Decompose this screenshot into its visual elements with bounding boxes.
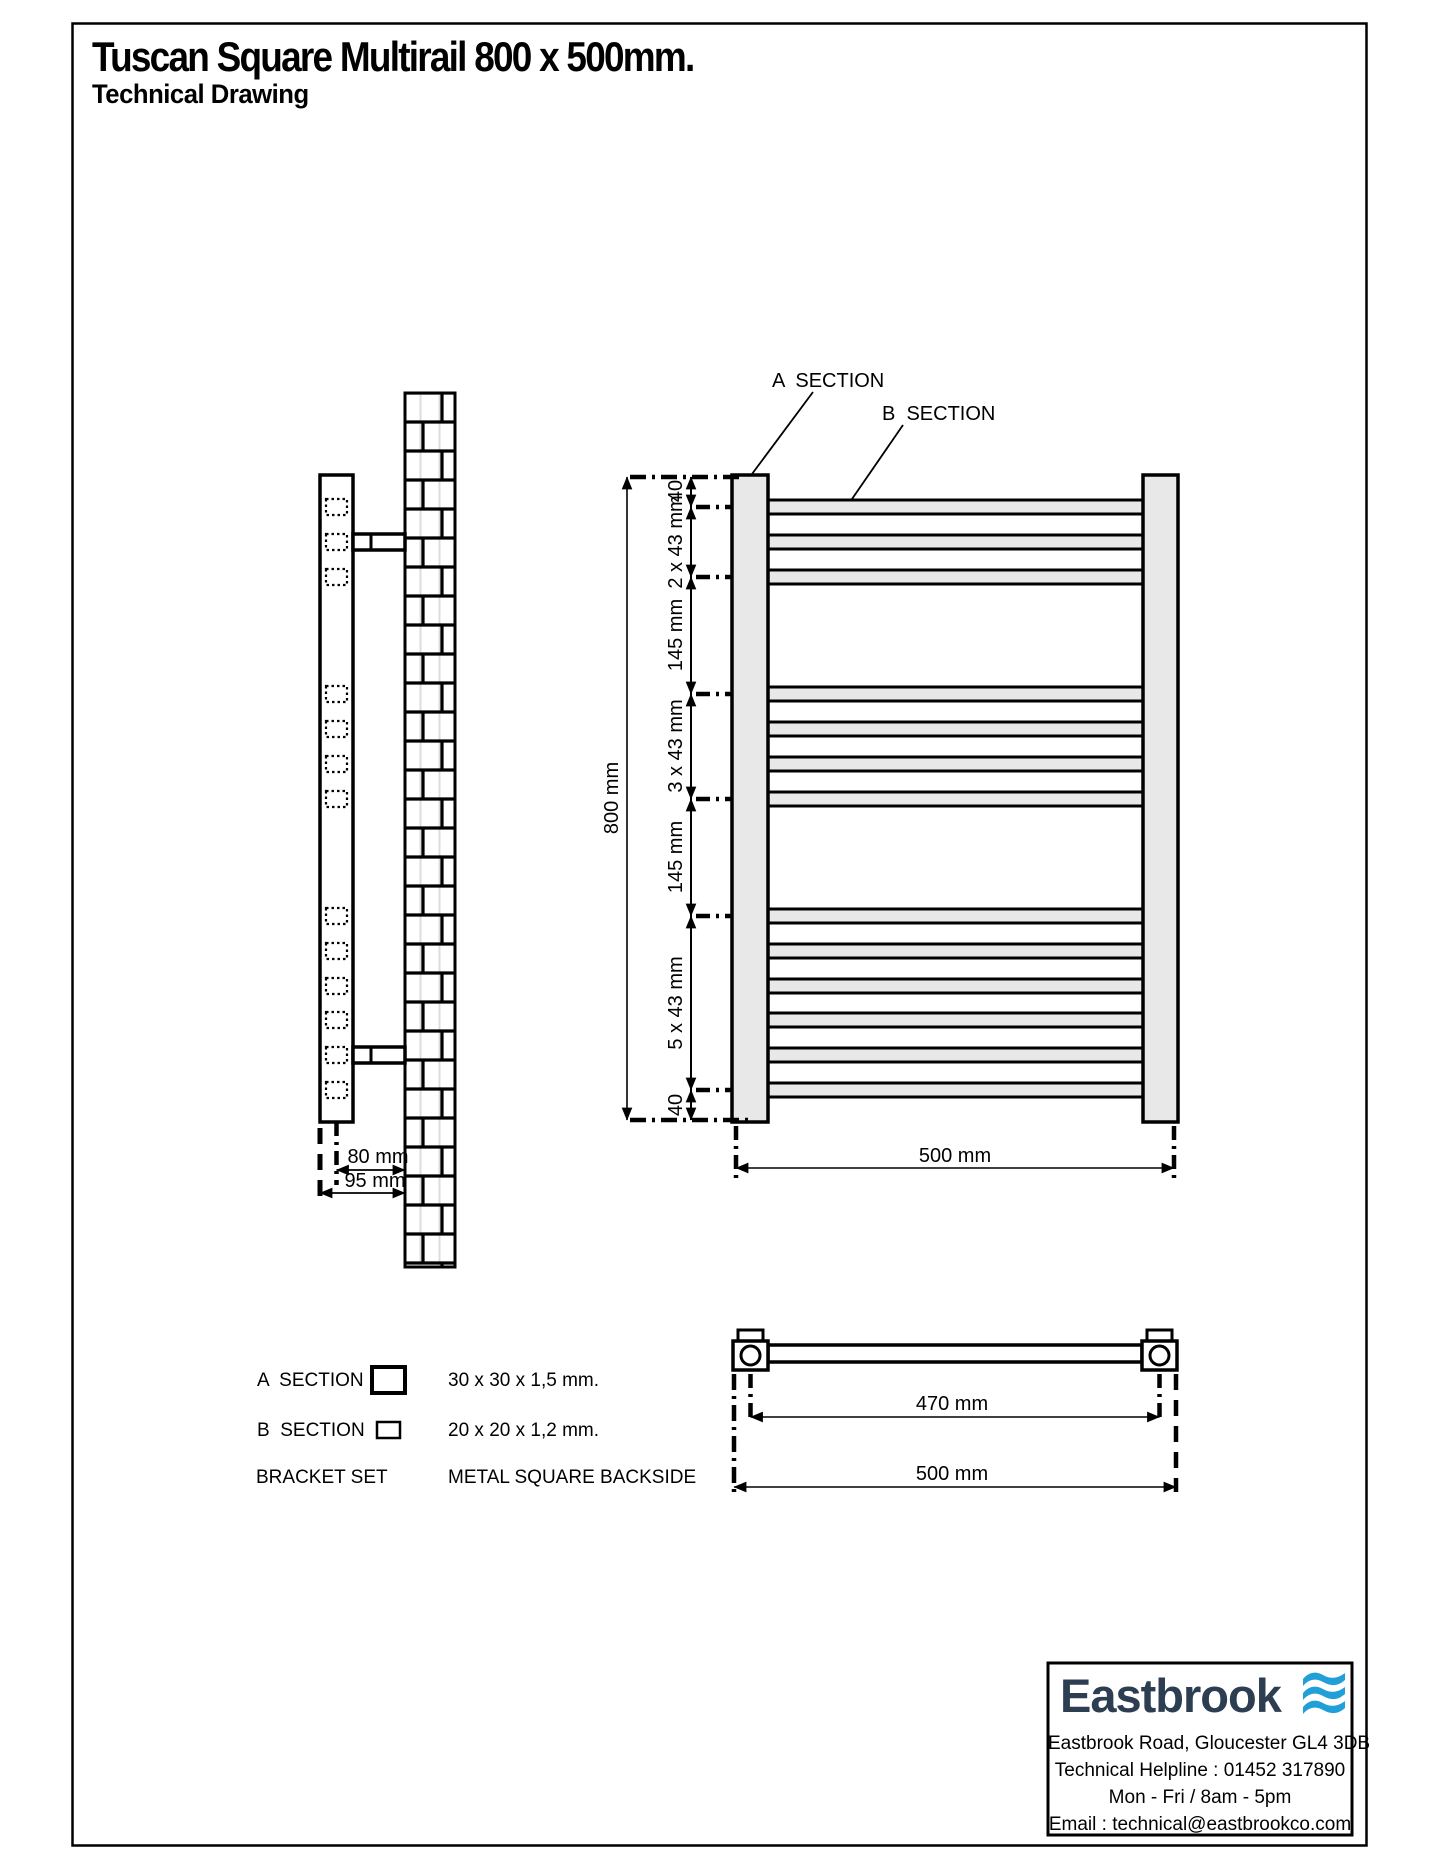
legend-section-b-swatch: [377, 1422, 400, 1438]
horizontal-bar: [766, 570, 1145, 584]
dim-label-500mm-front: 500 mm: [919, 1146, 991, 1166]
dim-label-145-lower: 145 mm: [666, 821, 686, 893]
horizontal-bar: [766, 757, 1145, 771]
horizontal-bar: [766, 979, 1145, 993]
legend-section-b-label: B SECTION: [257, 1421, 365, 1440]
dim-label-bottom-40: 40: [666, 1094, 686, 1116]
bracket-bottom: [353, 1047, 405, 1063]
legend-bracket-label: BRACKET SET: [256, 1468, 388, 1487]
section-a-leader-line: [752, 392, 813, 474]
left-rail: [732, 475, 768, 1122]
section-b-label: B SECTION: [882, 404, 995, 424]
horizontal-bar: [766, 909, 1145, 923]
horizontal-bar: [766, 1048, 1145, 1062]
technical-drawing-page: Tuscan Square Multirail 800 x 500mm. Tec…: [0, 0, 1445, 1870]
bracket-top: [353, 534, 405, 550]
horizontal-bar: [766, 535, 1145, 549]
page-title: Tuscan Square Multirail 800 x 500mm.: [92, 36, 694, 78]
side-view: [320, 393, 455, 1267]
left-fixing-hole: [741, 1346, 760, 1365]
horizontal-bar: [766, 687, 1145, 701]
footer-address: Eastbrook Road, Gloucester GL4 3DB: [1048, 1734, 1352, 1753]
legend-section-a-swatch: [372, 1367, 405, 1393]
dim-label-3x43: 3 x 43 mm: [666, 699, 686, 792]
brick-wall: [405, 393, 455, 1267]
wall-section: [405, 393, 455, 1267]
dim-label-470mm: 470 mm: [916, 1394, 988, 1414]
dim-label-95mm: 95 mm: [344, 1171, 405, 1191]
dim-label-500mm-top: 500 mm: [916, 1464, 988, 1484]
horizontal-bars: [766, 500, 1145, 1097]
horizontal-bar: [766, 1013, 1145, 1027]
right-rail: [1143, 475, 1178, 1122]
dim-label-80mm: 80 mm: [347, 1147, 408, 1167]
height-dimensions: [627, 477, 748, 1120]
dim-label-145-upper: 145 mm: [666, 599, 686, 671]
horizontal-bar: [766, 722, 1145, 736]
horizontal-bar: [766, 500, 1145, 514]
eastbrook-wave-icon: [1303, 1673, 1345, 1714]
right-fixing-hole: [1150, 1346, 1169, 1365]
technical-drawing-canvas: [0, 0, 1445, 1870]
extension-ticks: [696, 507, 733, 1090]
legend-section-a-label: A SECTION: [257, 1371, 364, 1390]
footer-helpline: Technical Helpline : 01452 317890: [1048, 1761, 1352, 1780]
eastbrook-wordmark: Eastbrook: [1060, 1672, 1281, 1719]
dim-label-5x43: 5 x 43 mm: [666, 956, 686, 1049]
horizontal-bar: [766, 1083, 1145, 1097]
legend-section-b-spec: 20 x 20 x 1,2 mm.: [448, 1421, 599, 1440]
front-view: [627, 392, 1178, 1178]
page-subtitle: Technical Drawing: [92, 81, 309, 108]
legend-bracket-spec: METAL SQUARE BACKSIDE: [448, 1468, 696, 1487]
section-b-leader-line: [852, 425, 903, 499]
footer-email: Email : technical@eastbrookco.com: [1048, 1815, 1352, 1834]
legend-section-a-spec: 30 x 30 x 1,5 mm.: [448, 1371, 599, 1390]
dim-label-2x43: 2 x 43 mm: [666, 495, 686, 588]
dim-label-800mm: 800 mm: [602, 762, 622, 834]
horizontal-bar: [766, 944, 1145, 958]
horizontal-bar: [766, 792, 1145, 806]
section-a-label: A SECTION: [772, 371, 884, 391]
footer-hours: Mon - Fri / 8am - 5pm: [1048, 1788, 1352, 1807]
top-view-rail: [768, 1345, 1142, 1362]
